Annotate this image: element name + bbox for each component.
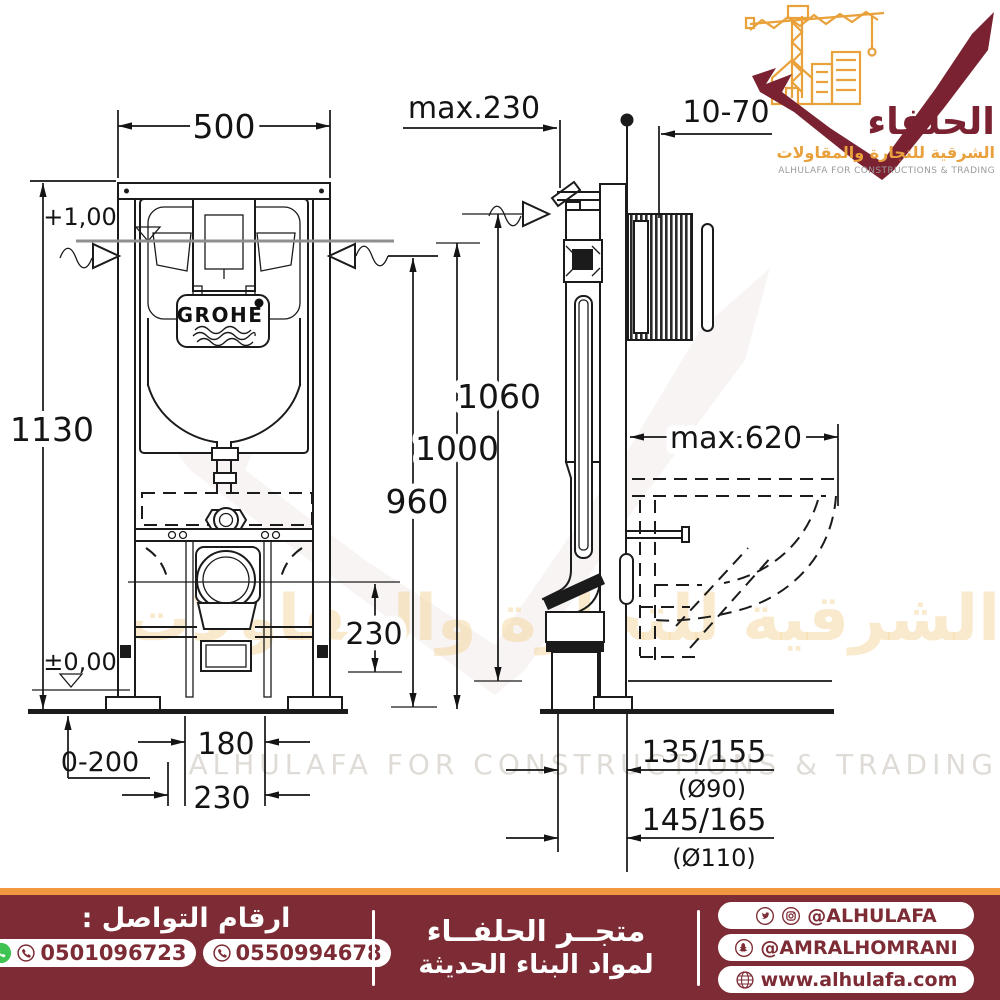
phone-number-2: 0550994678 xyxy=(236,941,382,965)
dim-height-left: 1130 xyxy=(10,410,94,449)
snapchat-icon xyxy=(734,938,754,958)
grohe-logo: GROHE xyxy=(177,295,269,347)
footer-social-section: @ALHULAFA @AMRALHOMRANI www.alhulaf xyxy=(700,895,1000,1000)
phone-row: 0501096723 0550994678 xyxy=(0,939,391,967)
brand-logo: الحلفاء الشرقية للتجارة والمقاولات ALHUL… xyxy=(736,0,1000,196)
dim-drain-b: 145/165 xyxy=(642,803,767,838)
floor-line-front xyxy=(28,709,348,714)
globe-icon xyxy=(735,970,755,990)
instagram-icon xyxy=(781,906,801,926)
flush-level-arrow-side xyxy=(523,202,549,226)
social-handle-1: @ALHULAFA xyxy=(807,905,936,927)
contact-title: ارقام التواصل : xyxy=(82,903,291,934)
dim-drain-a: 135/155 xyxy=(642,735,767,770)
toilet-bowl-outline xyxy=(632,479,836,660)
brand-name-arabic: الحلفاء xyxy=(867,100,995,143)
brand-tagline-english: ALHULAFA FOR CONSTRUCTIONS & TRADING xyxy=(778,166,995,176)
grohe-text: GROHE xyxy=(177,303,264,327)
dim-depth-max: max.230 xyxy=(408,91,540,126)
dim-outlet-height: 230 xyxy=(345,617,402,652)
twitter-icon xyxy=(755,906,775,926)
level-zero: ±0,00 xyxy=(43,648,117,676)
social-pill-website[interactable]: www.alhulafa.com xyxy=(718,966,974,993)
store-name: متجــر الحلفــاء xyxy=(427,913,646,949)
break-symbol-side xyxy=(489,206,521,226)
break-symbol-right xyxy=(356,246,388,266)
dim-bowl-depth: max.620 xyxy=(670,421,802,456)
dim-width-top: 500 xyxy=(193,107,256,146)
floor-line-side xyxy=(540,709,834,714)
wall-axis-dot xyxy=(621,114,634,127)
dim-230-bottom: 230 xyxy=(193,781,250,816)
dim-180: 180 xyxy=(197,727,254,762)
footer-accent-strip xyxy=(0,888,1000,895)
break-symbol-left xyxy=(60,248,92,268)
product-diagram-page: الشرقية للتجارة والمقاولات ALHULAFA FOR … xyxy=(0,0,1000,1000)
flush-level-arrow-right xyxy=(329,244,355,268)
phone-icon xyxy=(16,943,36,963)
dim-1000: 1000 xyxy=(415,429,499,468)
social-pill-alhulafa[interactable]: @ALHULAFA xyxy=(718,902,974,929)
whatsapp-icon xyxy=(0,942,12,964)
phone-pill-1[interactable]: 0501096723 xyxy=(0,939,196,967)
dim-feet-range: 0-200 xyxy=(61,747,139,778)
social-pill-snapchat[interactable]: @AMRALHOMRANI xyxy=(718,934,974,961)
dim-drain-a-diameter: (Ø90) xyxy=(678,775,746,803)
social-handle-2: @AMRALHOMRANI xyxy=(760,937,957,959)
brand-tagline-arabic: الشرقية للتجارة والمقاولات xyxy=(777,143,995,162)
store-subtitle: لمواد البناء الحديثة xyxy=(418,949,653,982)
website-url: www.alhulafa.com xyxy=(761,969,958,991)
phone-pill-2[interactable]: 0550994678 xyxy=(203,939,391,967)
footer-bar: ارقام التواصل : 0501096723 xyxy=(0,895,1000,1000)
footer-contact-section: ارقام التواصل : 0501096723 xyxy=(0,895,372,1000)
phone-icon xyxy=(212,943,232,963)
level-plus-100: +1,00 xyxy=(43,203,117,231)
dim-1060: 1060 xyxy=(457,377,541,416)
footer: ارقام التواصل : 0501096723 xyxy=(0,888,1000,1000)
dim-960: 960 xyxy=(386,482,449,521)
flush-level-arrow-left xyxy=(93,244,119,268)
dim-drain-b-diameter: (Ø110) xyxy=(672,844,755,872)
footer-store-section: متجــر الحلفــاء لمواد البناء الحديثة xyxy=(375,895,697,1000)
phone-number-1: 0501096723 xyxy=(40,941,186,965)
